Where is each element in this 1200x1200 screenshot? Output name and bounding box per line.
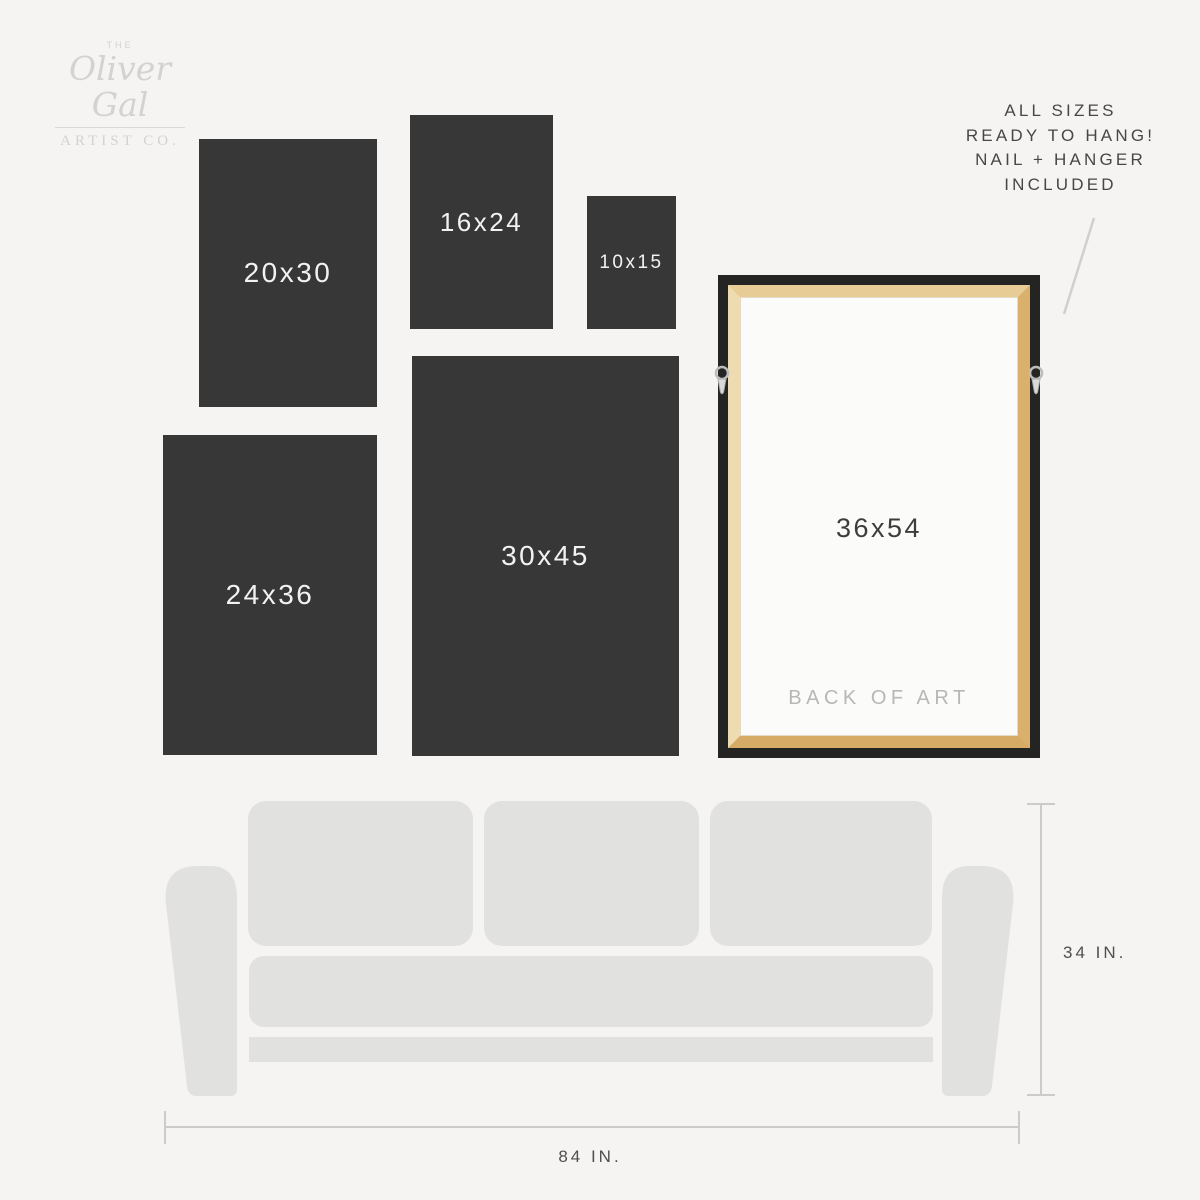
size-panel-20x30: 20x30 <box>199 139 377 407</box>
size-label-20x30: 20x30 <box>244 257 333 289</box>
note-line-4: INCLUDED <box>928 173 1193 198</box>
sofa-back-cushion <box>710 801 932 946</box>
size-label-36x54: 36x54 <box>718 513 1040 544</box>
sofa-width-label: 84 IN. <box>460 1147 720 1167</box>
size-label-24x36: 24x36 <box>226 579 315 611</box>
ready-to-hang-note: ALL SIZES READY TO HANG! NAIL + HANGER I… <box>928 99 1193 197</box>
brand-logo: THE Oliver Gal ARTIST CO. <box>45 40 195 150</box>
sofa-back-cushion <box>248 801 473 946</box>
note-pointer-line <box>1050 210 1110 320</box>
sofa-silhouette <box>150 790 1060 1110</box>
height-dimension-cap-bottom <box>1027 1094 1055 1096</box>
size-panel-10x15: 10x15 <box>587 196 676 329</box>
sofa-seat-cushion <box>249 956 933 1027</box>
brand-logo-divider <box>55 127 185 128</box>
width-dimension-line <box>165 1126 1019 1128</box>
sofa-height-label: 34 IN. <box>1063 943 1126 963</box>
width-dimension-cap-left <box>164 1111 166 1144</box>
height-dimension-line <box>1040 804 1042 1095</box>
d-ring-hanger-icon <box>1025 363 1047 397</box>
d-ring-hanger-icon <box>711 363 733 397</box>
size-label-10x15: 10x15 <box>599 252 663 274</box>
width-dimension-cap-right <box>1018 1111 1020 1144</box>
sofa-right-arm <box>942 866 1013 1096</box>
height-dimension-cap-top <box>1027 803 1055 805</box>
brand-logo-name: Oliver Gal <box>45 51 195 123</box>
size-panel-16x24: 16x24 <box>410 115 553 329</box>
brand-logo-suffix: ARTIST CO. <box>45 133 195 150</box>
size-label-16x24: 16x24 <box>440 207 523 238</box>
size-label-30x45: 30x45 <box>501 540 590 572</box>
back-of-art-label: BACK OF ART <box>718 687 1040 710</box>
sofa-left-arm <box>166 866 237 1096</box>
note-line-3: NAIL + HANGER <box>928 148 1193 173</box>
note-line-2: READY TO HANG! <box>928 124 1193 149</box>
note-line-1: ALL SIZES <box>928 99 1193 124</box>
size-panel-30x45: 30x45 <box>412 356 679 756</box>
sofa-back-cushion <box>484 801 699 946</box>
sofa-base <box>249 1037 933 1062</box>
size-panel-24x36: 24x36 <box>163 435 377 755</box>
art-frame-36x54: 36x54 BACK OF ART <box>718 275 1040 758</box>
